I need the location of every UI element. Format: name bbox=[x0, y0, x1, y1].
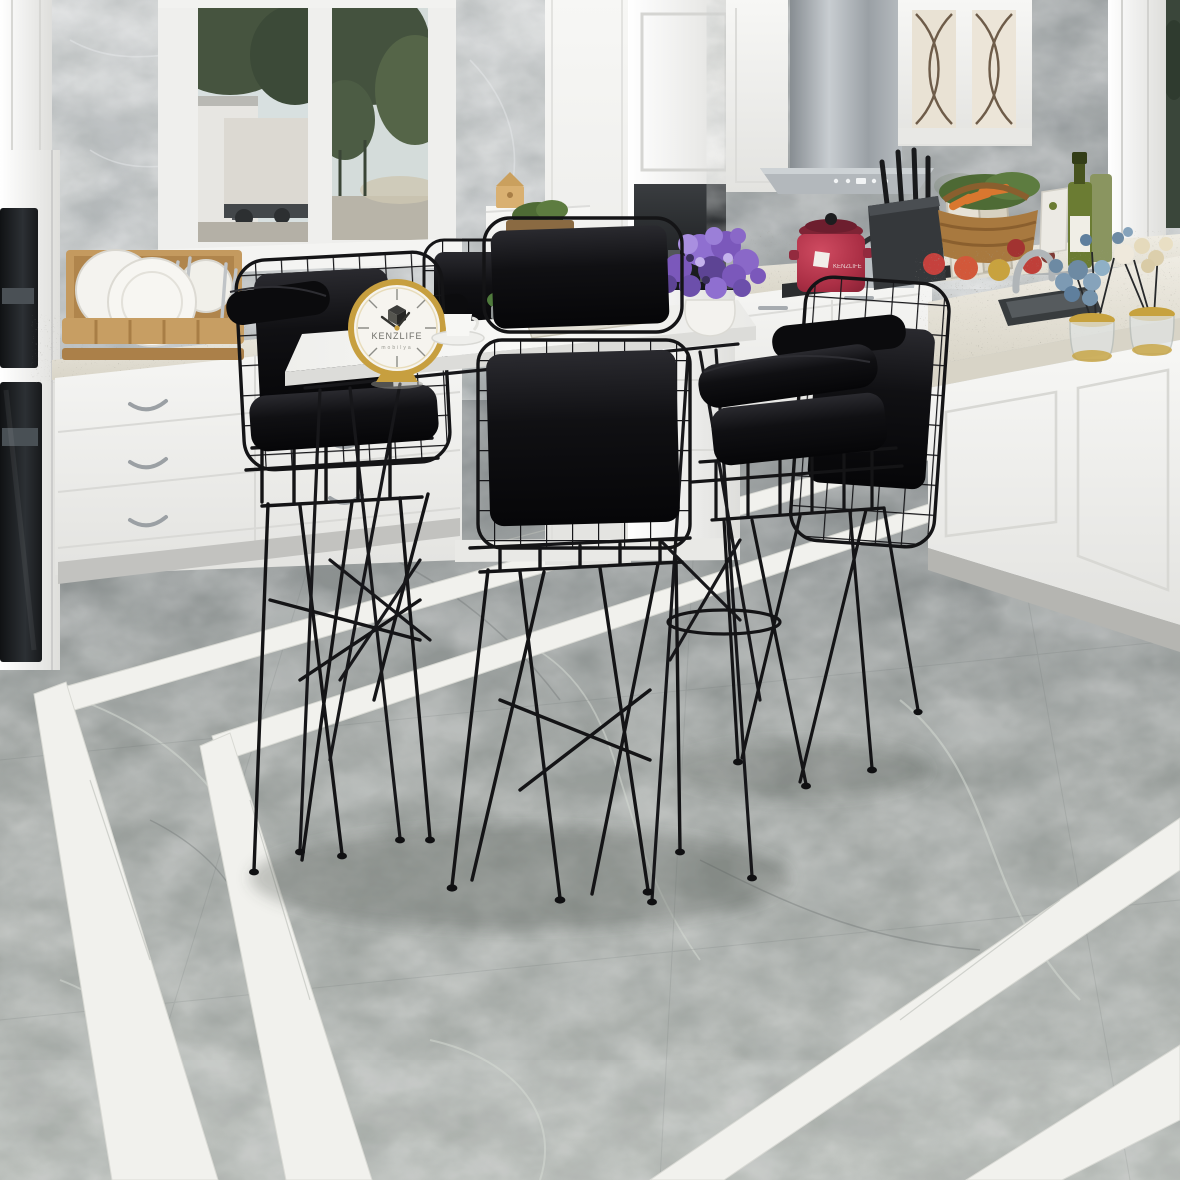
right-window-frame bbox=[1108, 0, 1166, 240]
white-vase bbox=[685, 300, 735, 336]
window-mullion bbox=[308, 0, 332, 248]
glass-jar-right bbox=[1129, 307, 1175, 356]
center-stool-headrest bbox=[490, 225, 669, 329]
window-right bbox=[1108, 0, 1180, 240]
window-left bbox=[150, 0, 462, 276]
kitchen-scene-canvas: KENZLIFE bbox=[0, 0, 1180, 1180]
pot-logo bbox=[813, 251, 830, 268]
foreground-light-wash bbox=[0, 1060, 1180, 1180]
glass-jar-left bbox=[1069, 313, 1115, 362]
oven-lower-handle bbox=[2, 428, 38, 446]
glass-door-pane-left bbox=[912, 10, 956, 128]
center-stool-back-cushion bbox=[486, 350, 680, 527]
glass-door-pane-right bbox=[972, 10, 1016, 128]
oil-label bbox=[1070, 216, 1090, 252]
kitchen-photo: KENZLIFE bbox=[0, 0, 1180, 1180]
tall-oven-cabinet bbox=[0, 150, 60, 670]
clock-brand-text: KENZLIFE bbox=[371, 331, 422, 341]
pot-brand-text: KENZLIFE bbox=[833, 264, 862, 270]
clock-subtext: mobilya bbox=[381, 345, 412, 351]
glass-upper-cabinet bbox=[898, 0, 1032, 146]
outdoor-pavement bbox=[196, 222, 308, 242]
rack-front-rail bbox=[62, 318, 244, 344]
oven-upper-handle bbox=[2, 288, 34, 304]
oil-bottle-back bbox=[1090, 174, 1112, 262]
wooden-dish-rack bbox=[62, 250, 244, 360]
outdoor-truck-trailer bbox=[224, 118, 308, 210]
pot-lid-knob bbox=[825, 213, 837, 225]
hood-chimney bbox=[790, 0, 902, 170]
